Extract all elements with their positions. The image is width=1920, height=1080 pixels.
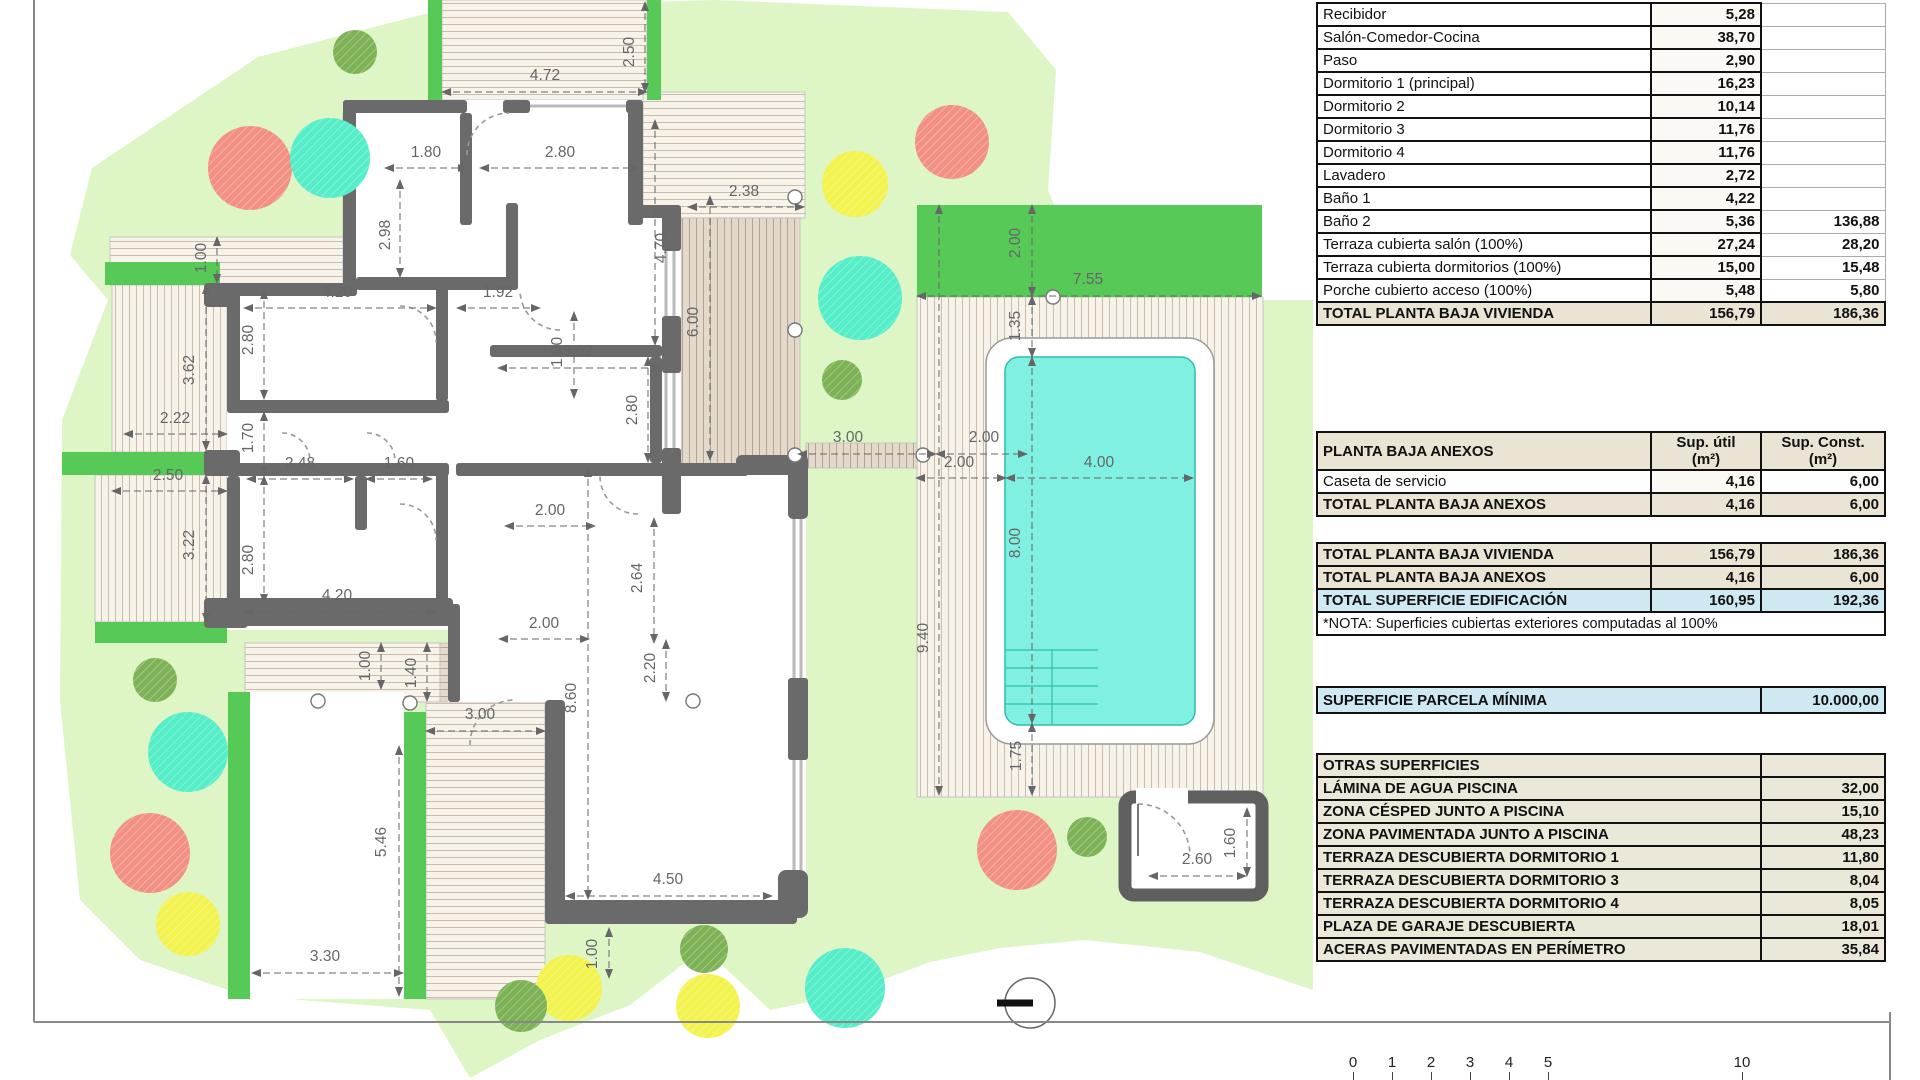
table-row: SUPERFICIE PARCELA MÍNIMA 10.000,00 (1317, 687, 1885, 713)
room-label: Baño 1 (1317, 187, 1651, 210)
dimension-label: 1.00 (357, 651, 374, 682)
dimension-label: 8.00 (1007, 528, 1024, 559)
total-sup-util: 156,79 (1651, 302, 1761, 325)
dimension-label: 2.80 (545, 144, 576, 161)
dimension-label: 2.50 (621, 37, 638, 68)
table-row: ACERAS PAVIMENTADAS EN PERÍMETRO35,84 (1317, 938, 1885, 961)
dimension-label: 4.20 (322, 587, 353, 604)
scale-tick (1470, 1072, 1471, 1080)
total-label: TOTAL PLANTA BAJA VIVIENDA (1317, 543, 1651, 566)
total-sup-util: 156,79 (1651, 543, 1761, 566)
room-label: Salón-Comedor-Cocina (1317, 26, 1651, 49)
total-sup-util: 4,16 (1651, 493, 1761, 516)
dimension-label: 2.00 (944, 454, 975, 471)
column-marker (403, 696, 417, 710)
scale-tick (1509, 1072, 1510, 1080)
note-text: *NOTA: Superficies cubiertas exteriores … (1317, 612, 1885, 635)
dimension-label: 1.60 (384, 455, 415, 472)
sup-util-value: 10,14 (1651, 95, 1761, 118)
table-row: TOTAL PLANTA BAJA ANEXOS4,166,00 (1317, 493, 1885, 516)
dimension-label: 2.60 (1182, 851, 1213, 868)
room-label: Baño 2 (1317, 210, 1651, 233)
dimension-label: 4.20 (322, 284, 353, 301)
dimension-label: 4.00 (1084, 454, 1115, 471)
table-row: Dormitorio 210,14 (1317, 95, 1885, 118)
room-label: Lavadero (1317, 164, 1651, 187)
surface-value: 18,01 (1761, 915, 1885, 938)
sup-const-value (1761, 164, 1885, 187)
surface-value: 32,00 (1761, 777, 1885, 800)
scale-tick (1548, 1072, 1549, 1080)
dimension-label: 2.38 (729, 183, 759, 200)
architectural-plan-page: 4.722.501.802.802.984.701.921.603.622.80… (0, 0, 1920, 1080)
surface-label: ZONA CÉSPED JUNTO A PISCINA (1317, 800, 1761, 823)
scale-number: 1 (1388, 1054, 1396, 1071)
total-sup-const: 192,36 (1761, 589, 1885, 612)
dimension-label: 2.20 (642, 653, 659, 684)
table-parcela-minima: SUPERFICIE PARCELA MÍNIMA 10.000,00 (1316, 686, 1886, 714)
dimension-label: 6.00 (685, 307, 702, 338)
room-label: Dormitorio 3 (1317, 118, 1651, 141)
table-row: Baño 14,22 (1317, 187, 1885, 210)
table-row: TERRAZA DESCUBIERTA DORMITORIO 38,04 (1317, 869, 1885, 892)
sup-const-value (1761, 95, 1885, 118)
table-row: ZONA PAVIMENTADA JUNTO A PISCINA48,23 (1317, 823, 1885, 846)
table-row: *NOTA: Superficies cubiertas exteriores … (1317, 612, 1885, 635)
room-label: Porche cubierto acceso (100%) (1317, 279, 1651, 302)
sup-util-value: 5,36 (1651, 210, 1761, 233)
table-totales: TOTAL PLANTA BAJA VIVIENDA156,79186,36TO… (1316, 542, 1886, 636)
sup-util-value: 5,28 (1651, 3, 1761, 26)
dimension-label: 1.40 (403, 658, 420, 689)
column-marker (311, 694, 325, 708)
dimension-label: 2.00 (1007, 228, 1024, 259)
dimension-label: 3.62 (563, 343, 593, 360)
total-sup-const: 186,36 (1761, 302, 1885, 325)
table-otras-superficies: OTRAS SUPERFICIESLÁMINA DE AGUA PISCINA3… (1316, 753, 1886, 962)
surface-label: TERRAZA DESCUBIERTA DORMITORIO 3 (1317, 869, 1761, 892)
dimension-label: 2.50 (153, 467, 184, 484)
table-row: PLAZA DE GARAJE DESCUBIERTA18,01 (1317, 915, 1885, 938)
sup-util-value: 2,72 (1651, 164, 1761, 187)
table-planta-baja-anexos: PLANTA BAJA ANEXOSSup. útil (m²)Sup. Con… (1316, 431, 1886, 517)
sup-const-value (1761, 49, 1885, 72)
sup-const-value: 28,20 (1761, 233, 1885, 256)
total-sup-const: 6,00 (1761, 493, 1885, 516)
dimension-label: 1.70 (240, 423, 257, 454)
table-row: Paso2,90 (1317, 49, 1885, 72)
sup-const-value: 15,48 (1761, 256, 1885, 279)
anexo-label: Caseta de servicio (1317, 470, 1651, 493)
dimension-label: 4.72 (530, 67, 560, 84)
dimension-label: 3.00 (465, 706, 496, 723)
sup-const-value: 6,00 (1761, 470, 1885, 493)
sup-util-value: 27,24 (1651, 233, 1761, 256)
sup-const-value (1761, 72, 1885, 95)
table-row: ZONA CÉSPED JUNTO A PISCINA15,10 (1317, 800, 1885, 823)
room-label: Dormitorio 1 (principal) (1317, 72, 1651, 95)
dimension-label: 2.00 (529, 615, 560, 632)
surface-label: ZONA PAVIMENTADA JUNTO A PISCINA (1317, 823, 1761, 846)
table-row: PLANTA BAJA ANEXOSSup. útil (m²)Sup. Con… (1317, 432, 1885, 470)
surface-value: 8,05 (1761, 892, 1885, 915)
dimension-label: 9.40 (915, 623, 932, 654)
table-row: OTRAS SUPERFICIES (1317, 754, 1885, 777)
table-planta-baja-vivienda: Recibidor5,28Salón-Comedor-Cocina38,70Pa… (1316, 2, 1886, 326)
surface-label: LÁMINA DE AGUA PISCINA (1317, 777, 1761, 800)
room-label: Dormitorio 4 (1317, 141, 1651, 164)
surface-label: TERRAZA DESCUBIERTA DORMITORIO 4 (1317, 892, 1761, 915)
dimension-label: 2.80 (624, 395, 641, 426)
room-label: Terraza cubierta dormitorios (100%) (1317, 256, 1651, 279)
total-sup-util: 160,95 (1651, 589, 1761, 612)
table-row: Dormitorio 1 (principal)16,23 (1317, 72, 1885, 95)
dimension-label: 2.00 (535, 502, 566, 519)
total-label: TOTAL PLANTA BAJA ANEXOS (1317, 566, 1651, 589)
sup-util-value: 16,23 (1651, 72, 1761, 95)
dimension-label: 1.60 (1222, 828, 1239, 859)
dimension-label: 1.75 (1008, 741, 1025, 771)
sup-util-value: 38,70 (1651, 26, 1761, 49)
dimension-label: 3.00 (833, 429, 864, 446)
otras-header-empty (1761, 754, 1885, 777)
table-row: Dormitorio 411,76 (1317, 141, 1885, 164)
column-marker (686, 694, 700, 708)
total-sup-const: 6,00 (1761, 566, 1885, 589)
table-row: TERRAZA DESCUBIERTA DORMITORIO 48,05 (1317, 892, 1885, 915)
scale-number: 0 (1349, 1054, 1357, 1071)
sup-util-value: 11,76 (1651, 141, 1761, 164)
dimension-label: 2.64 (629, 563, 646, 594)
table-row: Salón-Comedor-Cocina38,70 (1317, 26, 1885, 49)
scale-tick (1742, 1072, 1743, 1080)
col-sup-util-header: Sup. útil (m²) (1651, 432, 1761, 470)
sup-const-value (1761, 26, 1885, 49)
surface-value: 35,84 (1761, 938, 1885, 961)
total-label: TOTAL PLANTA BAJA VIVIENDA (1317, 302, 1651, 325)
sup-util-value: 11,76 (1651, 118, 1761, 141)
table-row: Terraza cubierta salón (100%)27,2428,20 (1317, 233, 1885, 256)
sup-util-value: 4,22 (1651, 187, 1761, 210)
sup-const-value (1761, 118, 1885, 141)
table-row: LÁMINA DE AGUA PISCINA32,00 (1317, 777, 1885, 800)
anexos-header: PLANTA BAJA ANEXOS (1317, 432, 1651, 470)
surface-label: ACERAS PAVIMENTADAS EN PERÍMETRO (1317, 938, 1761, 961)
sup-const-value (1761, 3, 1885, 26)
room-label: Terraza cubierta salón (100%) (1317, 233, 1651, 256)
column-marker (788, 190, 802, 204)
col-sup-const-header: Sup. Const. (m²) (1761, 432, 1885, 470)
dimension-label: 4.50 (653, 871, 684, 888)
dimension-label: 4.70 (653, 233, 670, 264)
room-label: Recibidor (1317, 3, 1651, 26)
table-row: TERRAZA DESCUBIERTA DORMITORIO 111,80 (1317, 846, 1885, 869)
sup-util-value: 15,00 (1651, 256, 1761, 279)
dimension-label: 1.35 (1007, 311, 1024, 341)
column-marker (788, 448, 802, 462)
scale-number: 5 (1544, 1054, 1552, 1071)
table-row: Dormitorio 311,76 (1317, 118, 1885, 141)
total-sup-util: 4,16 (1651, 566, 1761, 589)
room-label: Paso (1317, 49, 1651, 72)
dimension-label: 2.98 (377, 220, 394, 250)
sup-const-value: 136,88 (1761, 210, 1885, 233)
sup-util-value: 2,90 (1651, 49, 1761, 72)
column-marker (916, 448, 930, 462)
table-row: Lavadero2,72 (1317, 164, 1885, 187)
scale-number: 2 (1427, 1054, 1435, 1071)
parcela-label: SUPERFICIE PARCELA MÍNIMA (1317, 687, 1761, 713)
table-row: TOTAL PLANTA BAJA VIVIENDA156,79186,36 (1317, 543, 1885, 566)
surface-label: TERRAZA DESCUBIERTA DORMITORIO 1 (1317, 846, 1761, 869)
table-row: Caseta de servicio4,166,00 (1317, 470, 1885, 493)
dimension-label: 8.60 (563, 683, 580, 714)
dimension-label: 2.22 (160, 410, 190, 427)
dimension-label: 2.80 (240, 325, 257, 356)
dimension-label: 2.00 (969, 429, 1000, 446)
surface-value: 8,04 (1761, 869, 1885, 892)
room-label: Dormitorio 2 (1317, 95, 1651, 118)
sup-const-value (1761, 141, 1885, 164)
total-sup-const: 186,36 (1761, 543, 1885, 566)
dimension-label: 7.55 (1073, 271, 1103, 288)
table-row: Porche cubierto acceso (100%)5,485,80 (1317, 279, 1885, 302)
scale-number: 10 (1734, 1054, 1751, 1071)
dimension-label: 1.80 (411, 144, 442, 161)
table-row: Terraza cubierta dormitorios (100%)15,00… (1317, 256, 1885, 279)
sup-const-value (1761, 187, 1885, 210)
column-marker (788, 323, 802, 337)
table-row: TOTAL PLANTA BAJA ANEXOS4,166,00 (1317, 566, 1885, 589)
parcela-value: 10.000,00 (1761, 687, 1885, 713)
caseta-servicio (1125, 788, 1262, 895)
total-label: TOTAL SUPERFICIE EDIFICACIÓN (1317, 589, 1651, 612)
surface-value: 15,10 (1761, 800, 1885, 823)
benchmark-symbol (997, 978, 1055, 1028)
scale-number: 3 (1466, 1054, 1474, 1071)
sup-const-value: 5,80 (1761, 279, 1885, 302)
table-row: TOTAL SUPERFICIE EDIFICACIÓN160,95192,36 (1317, 589, 1885, 612)
table-row: Baño 25,36136,88 (1317, 210, 1885, 233)
dimension-label: 1.00 (584, 939, 601, 970)
table-row: Recibidor5,28 (1317, 3, 1885, 26)
dimension-label: 2.80 (240, 545, 257, 576)
surface-label: PLAZA DE GARAJE DESCUBIERTA (1317, 915, 1761, 938)
surface-value: 11,80 (1761, 846, 1885, 869)
dimension-label: 3.22 (181, 530, 198, 560)
dimension-label: 3.62 (181, 355, 198, 385)
pool-water (1005, 357, 1195, 725)
surface-value: 48,23 (1761, 823, 1885, 846)
scale-number: 4 (1505, 1054, 1513, 1071)
total-label: TOTAL PLANTA BAJA ANEXOS (1317, 493, 1651, 516)
sup-util-value: 5,48 (1651, 279, 1761, 302)
otras-header: OTRAS SUPERFICIES (1317, 754, 1761, 777)
dimension-label: 3.30 (310, 948, 341, 965)
dimension-label: 5.46 (373, 827, 390, 857)
scale-tick (1392, 1072, 1393, 1080)
dimension-label: 2.48 (285, 455, 315, 472)
table-row: TOTAL PLANTA BAJA VIVIENDA156,79186,36 (1317, 302, 1885, 325)
dimension-label: 1.92 (483, 284, 513, 301)
dimension-label: 1.00 (193, 243, 210, 274)
scale-tick (1353, 1072, 1354, 1080)
scale-tick (1431, 1072, 1432, 1080)
sup-util-value: 4,16 (1651, 470, 1761, 493)
column-marker (1046, 290, 1060, 304)
